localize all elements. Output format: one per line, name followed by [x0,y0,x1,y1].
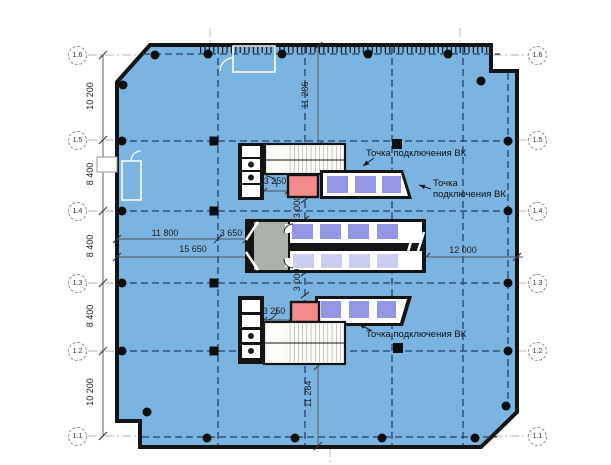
dim-top-span: 11 286 [300,65,310,125]
core-middle [245,219,426,273]
gray-room [254,222,288,270]
dim-left-5: 10 200 [85,362,95,422]
dim-left-3: 8 400 [85,216,95,276]
axis-bubble-right-1-6: 1.6 [528,46,547,65]
dim-row-b: 3 650 [207,228,255,238]
annotation-vk-right-line1: Точка [433,178,458,189]
vk-marker-bottom [393,343,403,353]
axis-bubble-right-1-3: 1.3 [528,274,547,293]
annotation-vk-bottom: Точка подключения ВК [366,329,466,340]
dim-left-4: 8 400 [85,286,95,346]
dim-left-2: 8 400 [85,144,95,204]
dim-left-1: 10 200 [85,66,95,126]
dim-gap-bottom: 3 000 [292,250,302,310]
axis-bubble-right-1-5: 1.5 [528,131,547,150]
axis-bubble-left-1-6: 1.6 [68,46,87,65]
axis-bubble-left-1-1: 1.1 [68,427,87,446]
dim-row-a: 11 800 [135,228,195,238]
dim-row-total: 15 650 [163,244,223,254]
annotation-vk-right-line2: подключения ВК [433,189,506,200]
dim-row-right: 12 000 [433,245,493,255]
balcony-recess [97,157,117,172]
axis-bubble-right-1-2: 1.2 [528,342,547,361]
dim-bottom-span: 11 284 [303,364,313,424]
axis-bubble-right-1-1: 1.1 [528,427,547,446]
dim-core-bottom: 3 250 [252,306,296,316]
floor-plan-canvas: 1.6 1.5 1.4 1.3 1.2 1.1 1.6 1.5 1.4 1.3 … [0,0,611,465]
dim-gap-top: 3 000 [292,177,302,237]
axis-bubble-right-1-4: 1.4 [528,202,547,221]
dim-core-top: 3 250 [253,176,297,186]
annotation-vk-top: Точка подключения ВК [366,148,466,159]
